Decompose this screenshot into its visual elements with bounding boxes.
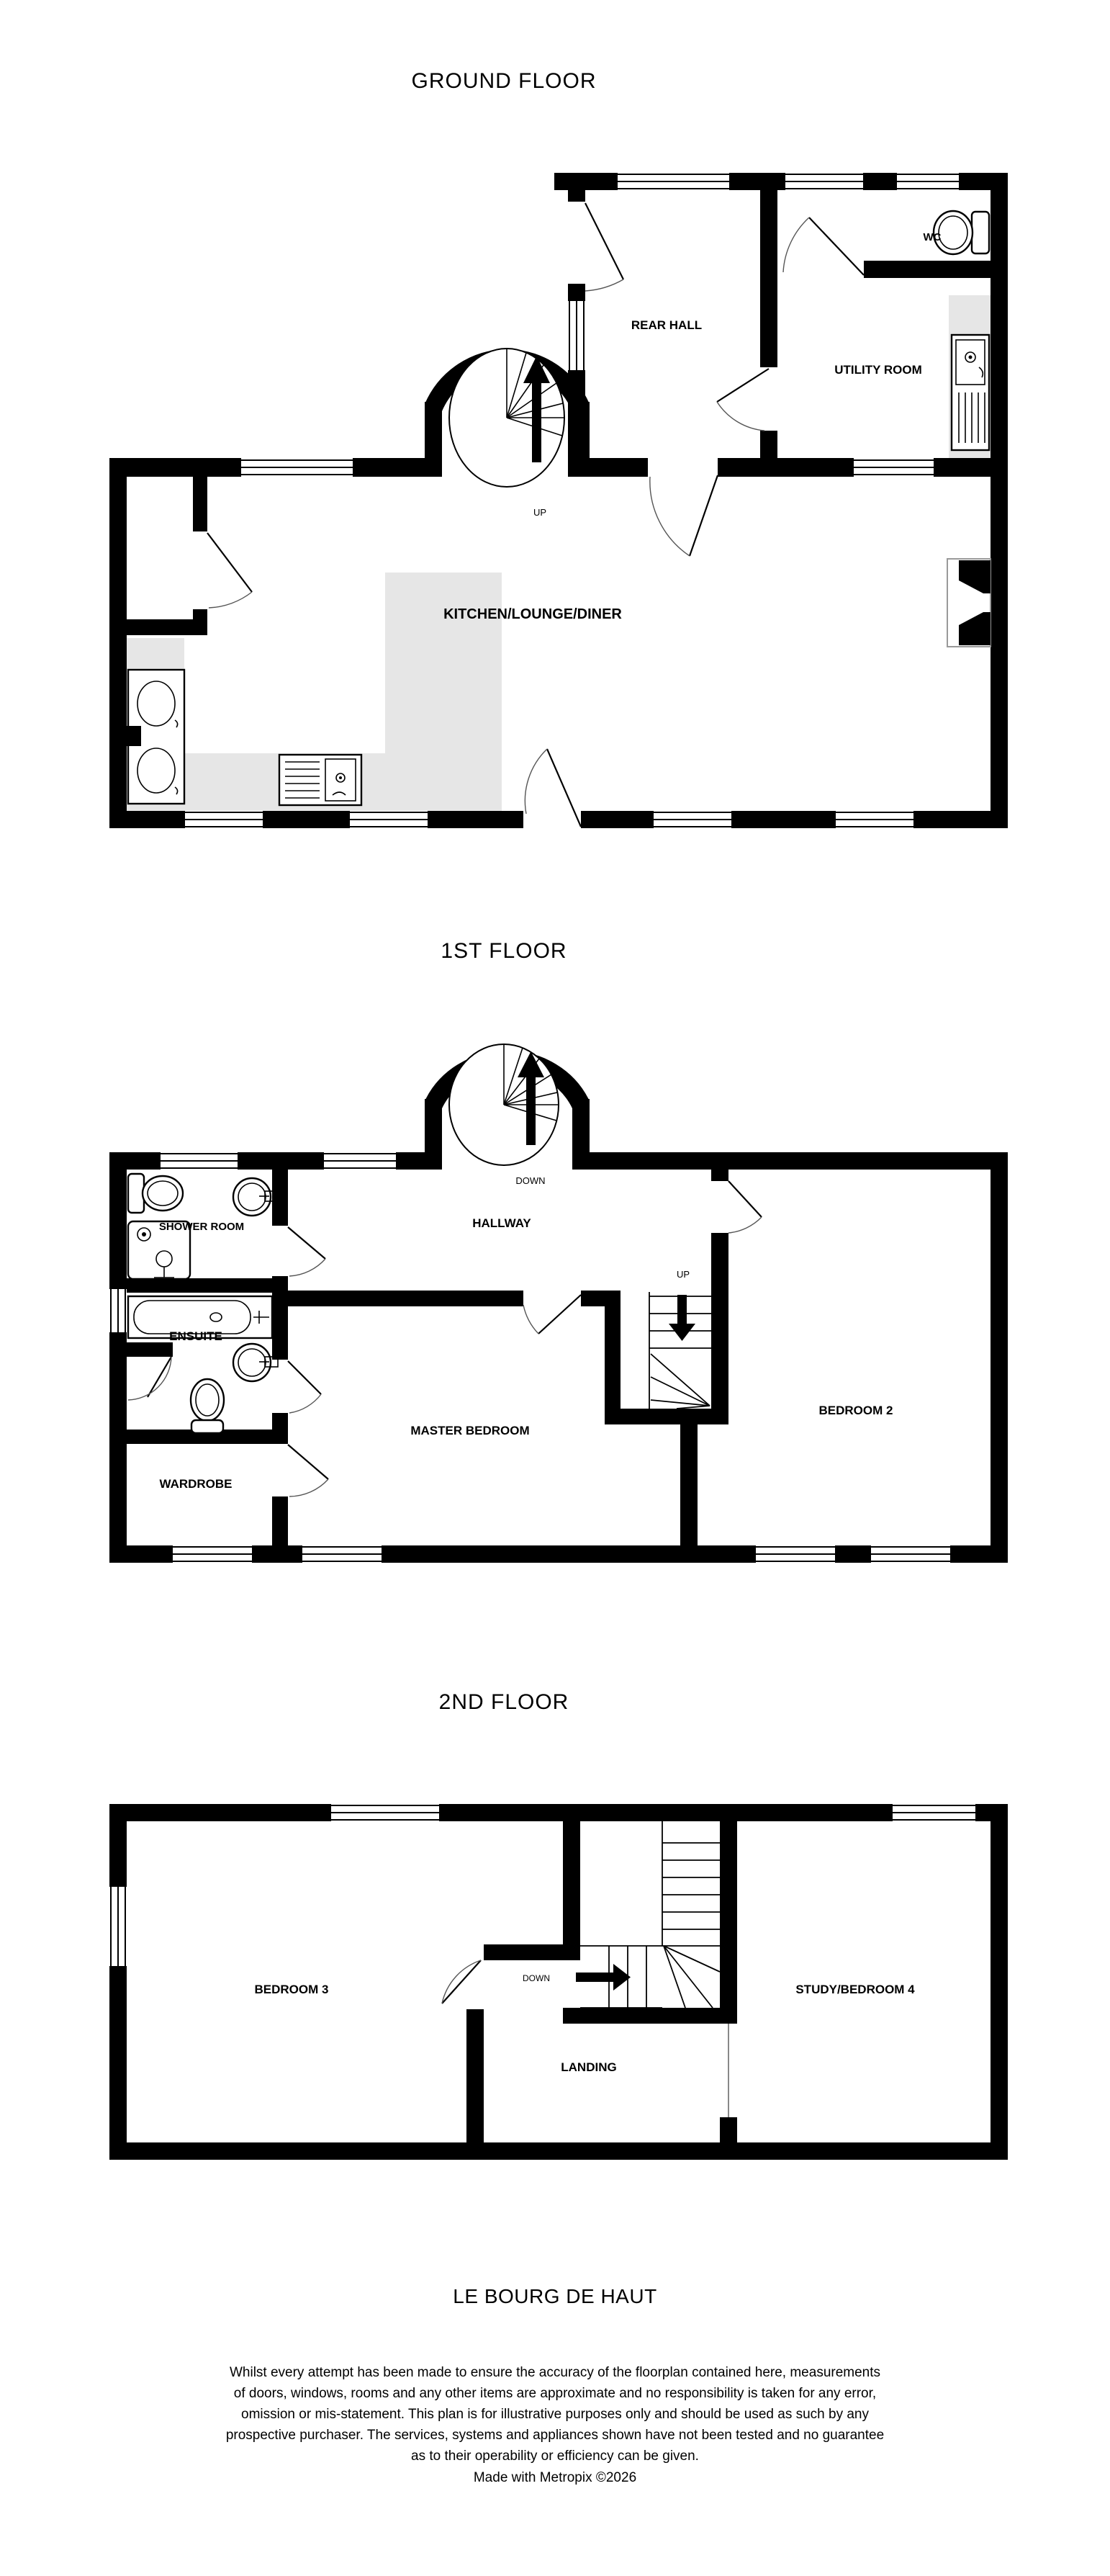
second-windows — [109, 1804, 975, 1966]
room-label-ensuite: ENSUITE — [169, 1329, 222, 1343]
utility-sink-icon — [952, 335, 989, 450]
kitchen-sink-icon — [279, 755, 361, 805]
spiral-staircase-icon: UP — [449, 349, 564, 518]
second-floor-title: 2ND FLOOR — [439, 1690, 569, 1714]
first-floor-plan: 1ST FLOOR — [109, 939, 1008, 1563]
first-stair-up-label: UP — [677, 1269, 690, 1280]
disclaimer-line-5: as to their operability or efficiency ca… — [411, 2449, 699, 2464]
fireplace-icon — [947, 559, 991, 647]
room-label-bedroom-2: BEDROOM 2 — [819, 1404, 893, 1417]
floorplan-drawing: GROUND FLOOR — [0, 0, 1110, 2576]
room-label-study-bedroom-4: STUDY/BEDROOM 4 — [795, 1983, 915, 1996]
ground-floor-plan: GROUND FLOOR — [109, 69, 1008, 828]
metropix-credit: Made with Metropix ©2026 — [474, 2470, 636, 2485]
room-label-master-bedroom: MASTER BEDROOM — [410, 1424, 529, 1437]
room-label-bedroom-3: BEDROOM 3 — [255, 1983, 329, 1996]
second-stair-label: DOWN — [523, 1973, 550, 1983]
staircase-down-icon: DOWN — [523, 1821, 720, 2008]
spiral-staircase-icon-first: DOWN — [449, 1044, 559, 1186]
wc-toilet-icon — [934, 211, 989, 254]
footer: LE BOURG DE HAUT Whilst every attempt ha… — [226, 2285, 884, 2485]
shower-room-basin-icon — [233, 1178, 278, 1216]
second-walls — [109, 1804, 1008, 2160]
disclaimer-line-2: of doors, windows, rooms and any other i… — [234, 2386, 876, 2401]
disclaimer-line-3: omission or mis-statement. This plan is … — [241, 2407, 869, 2422]
second-floor-plan: 2ND FLOOR — [109, 1690, 1008, 2160]
shower-room-toilet-icon — [128, 1174, 183, 1213]
down-flight-arrow-icon — [669, 1295, 695, 1341]
ground-walls — [109, 173, 1008, 828]
room-label-rear-hall: REAR HALL — [631, 318, 702, 332]
ensuite-toilet-icon — [191, 1379, 224, 1433]
ensuite-basin-icon — [233, 1344, 278, 1381]
room-label-shower-room: SHOWER ROOM — [159, 1221, 244, 1233]
room-label-wc: WC — [924, 231, 942, 243]
ground-floor-title: GROUND FLOOR — [411, 69, 596, 93]
room-label-landing: LANDING — [561, 2060, 616, 2074]
property-name: LE BOURG DE HAUT — [453, 2285, 656, 2307]
first-stair-down-label: DOWN — [515, 1175, 545, 1186]
second-doors — [442, 1960, 481, 2003]
disclaimer-line-1: Whilst every attempt has been made to en… — [230, 2365, 880, 2380]
disclaimer-line-4: prospective purchaser. The services, sys… — [226, 2428, 884, 2443]
cooker-icon — [127, 670, 184, 804]
room-label-utility-room: UTILITY ROOM — [834, 363, 922, 377]
staircase-up-icon: UP — [649, 1269, 711, 1409]
floorplan-page: GROUND FLOOR — [0, 0, 1110, 2576]
down-arrow-icon — [576, 1964, 631, 1991]
room-label-kitchen-lounge-diner: KITCHEN/LOUNGE/DINER — [443, 606, 622, 622]
first-floor-title: 1ST FLOOR — [441, 939, 567, 963]
room-label-wardrobe: WARDROBE — [159, 1477, 232, 1491]
ground-stair-label: UP — [533, 507, 546, 518]
room-label-hallway: HALLWAY — [472, 1216, 531, 1230]
